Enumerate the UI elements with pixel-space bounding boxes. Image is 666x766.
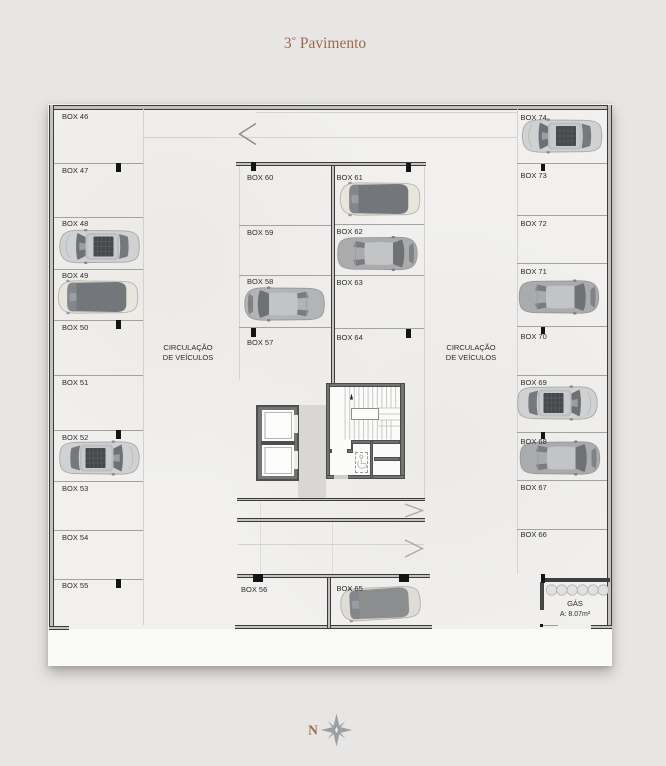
svg-text:N: N <box>308 723 318 738</box>
